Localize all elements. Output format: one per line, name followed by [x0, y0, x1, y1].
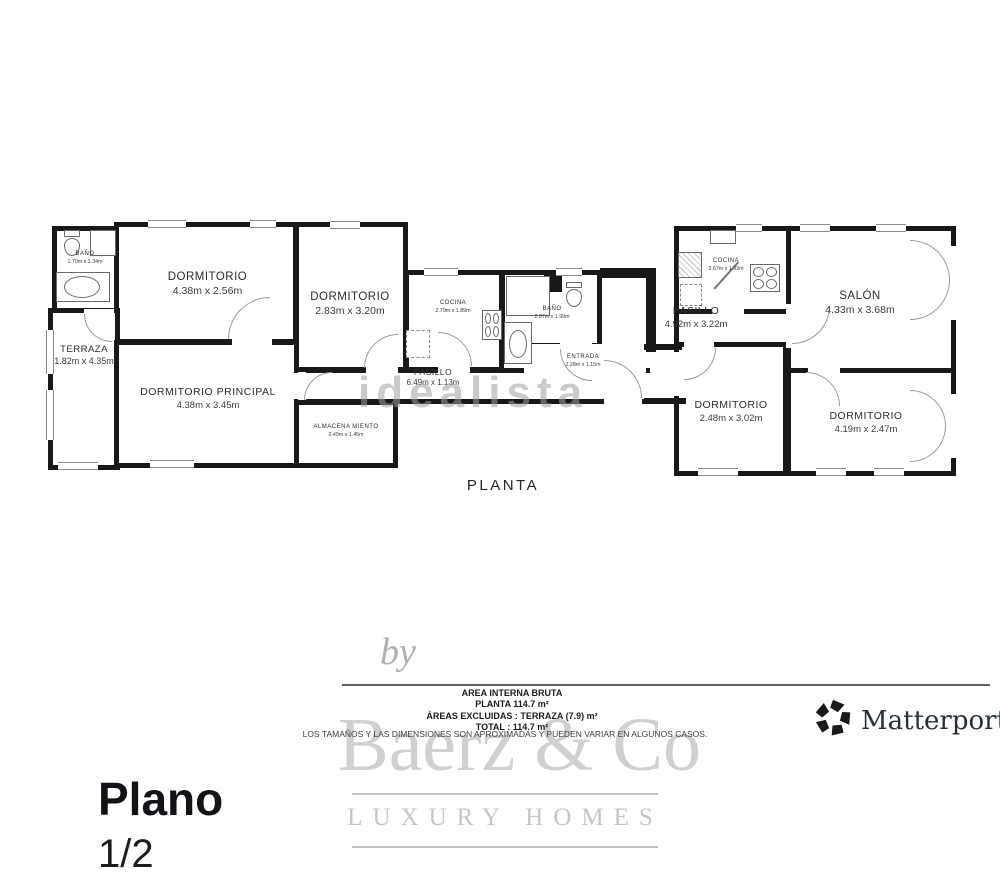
room-dims: 1.70m x 1.34m — [50, 259, 120, 266]
window-marker — [424, 268, 458, 276]
room-label-salon: SALÓN 4.33m x 3.68m — [798, 289, 922, 318]
room-label-pasillo-2: PASILLO 4.92m x 3.22m — [646, 305, 746, 331]
area-summary: AREA INTERNA BRUTA PLANTA 114.7 m² ÁREAS… — [332, 688, 692, 733]
room-dims: 1.82m x 4.35m — [48, 356, 120, 368]
room-label-dormitorio-principal: DORMITORIO PRINCIPAL 4.38m x 3.45m — [108, 386, 308, 412]
matterport-logo: Matterport — [812, 697, 1000, 744]
stove-burner — [493, 313, 499, 324]
room-name: ENTRADA — [546, 354, 620, 362]
divider-line — [342, 684, 990, 686]
fridge-icon — [680, 284, 702, 306]
room-label-cocina-2: COCINA 3.67m x 1.93m — [694, 258, 758, 273]
room-name: TERRAZA — [48, 344, 120, 356]
room-label-dormitorio-2: DORMITORIO 2.83m x 3.20m — [290, 290, 410, 319]
room-dims: 4.38m x 3.45m — [108, 400, 308, 412]
room-label-bano-2: BAÑO 2.07m x 1.99m — [522, 306, 582, 321]
room-dims: 4.92m x 3.22m — [646, 319, 746, 331]
watermark-rule-top — [352, 793, 658, 795]
room-dims: 2.07m x 1.99m — [522, 314, 582, 321]
matterport-label: Matterport — [861, 706, 1000, 736]
window-marker — [874, 468, 904, 476]
stove-burner — [485, 326, 491, 337]
room-name: COCINA — [420, 300, 486, 308]
window-marker — [800, 224, 830, 232]
toilet-icon — [64, 230, 80, 237]
sink-icon — [710, 230, 736, 244]
watermark-rule-bottom — [352, 846, 658, 848]
room-dims: 4.38m x 2.56m — [135, 285, 280, 299]
room-label-entrada: ENTRADA 2.28m x 1.15m — [546, 354, 620, 369]
page-title: Plano — [98, 772, 223, 826]
room-dims: 2.79m x 1.89m — [420, 308, 486, 315]
room-dims: 4.33m x 3.68m — [798, 304, 922, 318]
room-name: ALMACENA MIENTO — [298, 424, 394, 432]
room-label-terraza: TERRAZA 1.82m x 4.35m — [48, 344, 120, 368]
window-marker — [816, 468, 846, 476]
room-label-dormitorio-3: DORMITORIO 2.48m x 3.02m — [676, 399, 786, 425]
area-line-excluded: ÁREAS EXCLUIDAS : TERRAZA (7.9) m² — [332, 711, 692, 722]
window-marker — [58, 462, 98, 470]
window-marker — [148, 220, 186, 228]
stove-burner — [493, 326, 499, 337]
by-watermark-text: by — [380, 630, 416, 674]
room-label-dormitorio-1: DORMITORIO 4.38m x 2.56m — [135, 270, 280, 299]
door-opening — [604, 397, 642, 405]
room-name: COCINA — [694, 258, 758, 266]
room-label-bano-1: BAÑO 1.70m x 1.34m — [50, 251, 120, 266]
disclaimer-text: LOS TAMAÑOS Y LAS DIMENSIONES SON APROXI… — [300, 729, 710, 739]
room-dims: 2.49m x 1.45m — [298, 432, 394, 439]
room-dims: 4.19m x 2.47m — [804, 424, 928, 436]
door-opening — [232, 338, 272, 345]
room-label-dormitorio-4: DORMITORIO 4.19m x 2.47m — [804, 410, 928, 436]
room-name: DORMITORIO — [676, 399, 786, 413]
floor-plan-page: BAÑO 1.70m x 1.34m DORMITORIO 4.38m x 2.… — [0, 0, 1000, 883]
window-marker — [250, 220, 276, 228]
area-line-gross: AREA INTERNA BRUTA — [332, 688, 692, 699]
room-label-cocina-1: COCINA 2.79m x 1.89m — [420, 300, 486, 315]
idealista-watermark: idealista — [358, 368, 588, 418]
room-name: SALÓN — [798, 289, 922, 304]
window-marker — [876, 224, 906, 232]
room-name: PASILLO — [646, 305, 746, 319]
stove-burner — [766, 279, 777, 289]
toilet-icon — [566, 282, 582, 288]
agency-tagline: LUXURY HOMES — [345, 804, 665, 832]
window-marker — [150, 460, 194, 468]
room-label-almacenamiento: ALMACENA MIENTO 2.49m x 1.45m — [298, 424, 394, 439]
fridge-icon — [406, 330, 430, 358]
room-dims: 2.83m x 3.20m — [290, 305, 410, 319]
window-marker — [698, 468, 738, 476]
sink-icon — [509, 330, 527, 358]
floor-plan: BAÑO 1.70m x 1.34m DORMITORIO 4.38m x 2.… — [0, 0, 1000, 600]
stove-burner — [753, 279, 764, 289]
window-marker — [556, 268, 582, 276]
area-line-planta: PLANTA 114.7 m² — [332, 699, 692, 710]
room-name: DORMITORIO — [135, 270, 280, 285]
window-marker — [330, 221, 360, 229]
window-marker — [736, 224, 762, 232]
room-name: DORMITORIO — [804, 410, 928, 424]
plan-title: PLANTA — [448, 477, 558, 494]
stove-burner — [766, 267, 777, 277]
window-marker — [46, 390, 54, 440]
door-opening — [673, 352, 681, 396]
room-dims: 3.67m x 1.93m — [694, 266, 758, 273]
page-number: 1/2 — [98, 832, 154, 877]
wall-segment — [644, 344, 682, 350]
room-name: DORMITORIO PRINCIPAL — [108, 386, 308, 400]
matterport-pinwheel-icon — [812, 697, 854, 744]
door-opening — [948, 394, 956, 458]
room-name: BAÑO — [522, 306, 582, 314]
room-name: BAÑO — [50, 251, 120, 259]
room-dims: 2.48m x 3.02m — [676, 413, 786, 425]
bathtub-icon — [64, 276, 100, 298]
room-name: DORMITORIO — [290, 290, 410, 305]
